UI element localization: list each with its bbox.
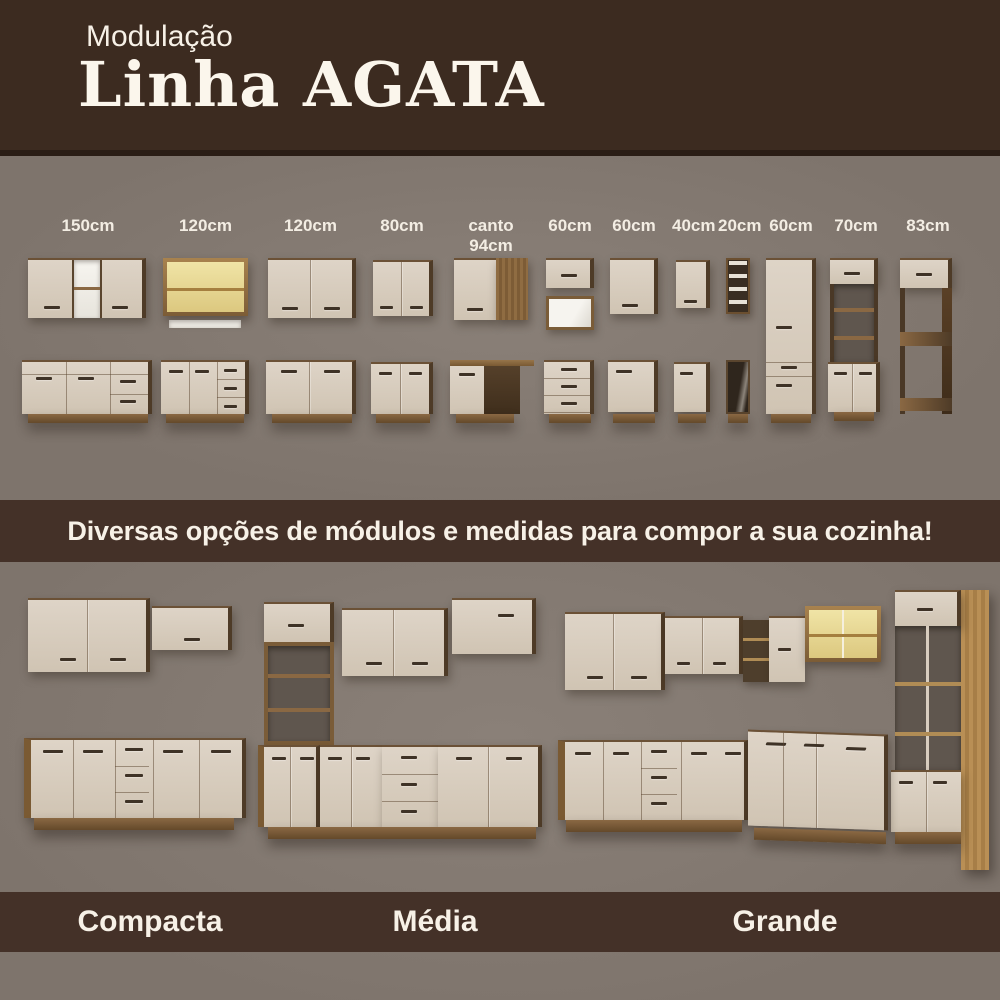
handle <box>43 750 63 753</box>
wall-cabinet-glass <box>163 258 248 316</box>
shelf <box>834 308 874 312</box>
handle <box>834 372 847 375</box>
corner-base-panel <box>484 366 520 414</box>
handle <box>272 757 286 760</box>
bottom-doors <box>828 362 880 412</box>
tower-top-door <box>895 590 961 626</box>
base-cabinet <box>608 360 658 412</box>
open-column <box>726 360 750 414</box>
module-40cm: 40cm <box>672 156 714 500</box>
handle <box>916 273 932 276</box>
handle <box>778 648 791 651</box>
top-door <box>830 258 878 284</box>
handle <box>845 747 866 751</box>
base-drawer-stack <box>544 360 594 414</box>
wall-cabinet <box>373 260 433 316</box>
module-120cm: 120cm <box>262 156 359 500</box>
wall-flap-door <box>546 258 594 288</box>
handle <box>622 304 638 307</box>
tall-wall-door <box>769 616 805 682</box>
handle <box>78 377 94 380</box>
open-shelving <box>830 284 878 362</box>
handle <box>575 752 591 755</box>
door-divider <box>641 742 642 820</box>
handle <box>651 776 667 779</box>
handle <box>561 385 577 388</box>
module-150cm: 150cm <box>20 156 156 500</box>
handle <box>281 370 297 373</box>
divider <box>766 376 812 377</box>
wood-side-panel <box>961 590 989 870</box>
base-cabinet <box>161 360 249 414</box>
wall-cabinet <box>610 258 658 314</box>
handle <box>60 658 76 661</box>
shelf <box>268 708 330 712</box>
handle <box>120 380 136 383</box>
handle <box>211 750 231 753</box>
module-size-label: 80cm <box>368 216 436 236</box>
drawer-line <box>115 766 149 767</box>
handle <box>456 757 472 760</box>
plinth <box>895 832 961 844</box>
module-size-label: 60cm <box>606 216 662 236</box>
door-divider <box>217 362 218 414</box>
shelf <box>895 732 961 736</box>
handle <box>561 402 577 405</box>
base-doors <box>320 745 382 827</box>
handle <box>561 274 577 277</box>
door-divider <box>153 740 154 818</box>
handle <box>917 608 933 611</box>
corner-open-shelf <box>743 620 769 682</box>
handle <box>651 802 667 805</box>
plinth <box>566 820 742 832</box>
handle <box>844 272 860 275</box>
handle <box>169 370 183 373</box>
handle <box>356 757 370 760</box>
wall-cabinet <box>676 260 710 308</box>
handle <box>631 676 647 679</box>
lit-glass-interior <box>167 262 244 312</box>
bottle-rack <box>726 258 750 314</box>
door-divider <box>110 362 111 414</box>
plinth <box>549 414 591 423</box>
module-60cm-tall: 60cm <box>762 156 820 500</box>
handle <box>467 308 483 311</box>
module-83cm-frame: 83cm <box>896 156 960 500</box>
plinth <box>272 414 352 423</box>
base-run <box>24 738 246 818</box>
divider <box>766 362 812 363</box>
handle <box>459 373 475 376</box>
wall-cabinet <box>565 612 665 690</box>
wall-cabinet-high <box>452 598 536 654</box>
page-title: Linha AGATA <box>78 48 545 121</box>
handle <box>224 387 237 390</box>
handle <box>379 372 392 375</box>
shelf <box>895 682 961 686</box>
header-banner: Modulação Linha AGATA <box>0 0 1000 156</box>
door-divider <box>66 362 67 414</box>
drawer-line <box>382 774 438 775</box>
handle <box>328 757 342 760</box>
top-door <box>900 258 952 288</box>
wall-cabinet-low <box>665 616 743 674</box>
plinth <box>34 818 234 830</box>
module-size-label: 20cm <box>718 216 758 236</box>
tall-tower <box>885 590 993 890</box>
handle <box>613 752 629 755</box>
handle <box>83 750 103 753</box>
lit-glass-cabinet <box>805 606 881 662</box>
handle <box>498 614 514 617</box>
handle <box>933 781 947 784</box>
corner-wall-door <box>454 258 496 320</box>
handle <box>401 783 417 786</box>
base-cabinet <box>674 362 710 412</box>
handle <box>803 744 824 748</box>
handle <box>677 662 690 665</box>
plinth <box>728 414 748 423</box>
door-divider <box>115 740 116 818</box>
drawer-line <box>382 801 438 802</box>
door-divider <box>681 742 682 820</box>
handle <box>282 307 298 310</box>
module-size-label: 60cm <box>762 216 820 236</box>
tower-open-grid <box>895 626 961 770</box>
handle <box>112 306 128 309</box>
handle <box>561 368 577 371</box>
shelf <box>809 634 877 637</box>
shelf <box>743 658 769 661</box>
handle <box>125 800 143 803</box>
handle <box>380 306 393 309</box>
wall-cabinet <box>28 258 146 318</box>
plinth <box>678 414 706 423</box>
handle <box>725 752 741 755</box>
handle <box>300 757 314 760</box>
handle <box>776 384 792 387</box>
module-60cm-niche: 60cm <box>542 156 598 500</box>
module-size-label: 120cm <box>158 216 253 236</box>
plinth <box>456 414 514 423</box>
kitchen-label-grande: Grande <box>732 892 837 952</box>
module-size-label: 83cm <box>896 216 960 236</box>
module-size-label: 70cm <box>826 216 886 236</box>
modules-gallery: 150cm 120cm <box>0 156 1000 500</box>
partition <box>926 626 929 770</box>
module-size-label: 120cm <box>262 216 359 236</box>
door-divider <box>73 740 74 818</box>
handle <box>412 662 428 665</box>
door-divider <box>783 733 784 827</box>
handle <box>713 662 726 665</box>
handle <box>401 756 417 759</box>
plinth <box>754 828 886 845</box>
slogan-text: Diversas opções de módulos e medidas par… <box>67 516 932 547</box>
microwave-niche <box>546 296 594 330</box>
module-120cm-glass: 120cm <box>158 156 253 500</box>
handle <box>324 370 340 373</box>
base-run-right <box>748 730 888 831</box>
corner-base-door <box>450 366 484 414</box>
kitchen-label-compacta: Compacta <box>77 892 222 952</box>
wall-cabinet <box>28 598 150 672</box>
plinth <box>834 412 874 421</box>
handle <box>859 372 872 375</box>
handle <box>44 306 60 309</box>
tall-cabinet <box>766 258 816 414</box>
drawer-line <box>217 379 245 380</box>
handle <box>684 300 697 303</box>
handle <box>587 676 603 679</box>
shelf <box>743 638 769 641</box>
handle <box>410 306 423 309</box>
drawer-line <box>217 397 245 398</box>
handle <box>506 757 522 760</box>
handle <box>781 366 797 369</box>
plinth <box>376 414 430 423</box>
drawer-line <box>115 792 149 793</box>
drawer-line <box>110 394 148 395</box>
handle <box>401 810 417 813</box>
base-doors <box>438 745 542 827</box>
handle <box>224 369 237 372</box>
handle <box>651 750 667 753</box>
handle <box>616 370 632 373</box>
drawer-line <box>641 794 677 795</box>
handle <box>195 370 209 373</box>
open-niche <box>72 260 102 318</box>
base-run-left <box>558 740 748 820</box>
plinth <box>28 414 148 423</box>
base-cabinet <box>22 360 152 414</box>
handle <box>366 662 382 665</box>
drawer-line <box>641 768 677 769</box>
light-strip <box>169 320 241 328</box>
module-80cm: 80cm <box>368 156 436 500</box>
module-size-label: 40cm <box>672 216 714 236</box>
tower-open-shelves <box>264 642 334 745</box>
shelf <box>167 288 244 291</box>
plinth <box>166 414 244 423</box>
module-size-label: 60cm <box>542 216 598 236</box>
kitchen-label-media: Média <box>392 892 477 952</box>
module-20cm-rack: 20cm <box>718 156 758 500</box>
module-70cm-tower: 70cm <box>826 156 886 500</box>
shelf <box>268 674 330 678</box>
base-cabinet <box>371 362 433 414</box>
wall-cabinet <box>342 608 448 676</box>
handle <box>680 372 693 375</box>
plinth <box>613 414 655 423</box>
handle <box>125 774 143 777</box>
lit-glass-interior <box>809 610 877 658</box>
handle <box>288 624 304 627</box>
handle <box>691 752 707 755</box>
handle <box>125 748 143 751</box>
plinth <box>268 827 536 839</box>
frame-base <box>900 398 952 411</box>
handle <box>899 781 913 784</box>
module-size-label: canto 94cm <box>448 216 534 256</box>
frame-shelf <box>900 332 952 346</box>
base-drawer-stack <box>382 745 438 827</box>
handle <box>324 307 340 310</box>
handle <box>110 658 126 661</box>
slogan-banner: Diversas opções de módulos e medidas par… <box>0 500 1000 562</box>
handle <box>120 400 136 403</box>
module-size-label: 150cm <box>20 216 156 236</box>
base-doors <box>258 745 320 827</box>
promo-image: Modulação Linha AGATA 150cm <box>0 0 1000 1000</box>
door-divider <box>199 740 200 818</box>
handle <box>776 326 792 329</box>
frame-rail-left <box>900 288 905 414</box>
handle <box>409 372 422 375</box>
shelf <box>834 336 874 340</box>
shelf <box>74 287 100 290</box>
module-canto-94cm: canto 94cm <box>448 156 534 500</box>
frame-rail-right <box>942 288 952 414</box>
rack-slots <box>729 261 747 311</box>
door-divider <box>603 742 604 820</box>
base-cabinet <box>266 360 356 414</box>
handle <box>36 377 52 380</box>
handle <box>224 405 237 408</box>
footer-band: Compacta Média Grande <box>0 892 1000 952</box>
plinth <box>771 414 811 423</box>
tower-top-door <box>264 602 334 642</box>
wall-cabinet-low <box>152 606 232 650</box>
handle <box>163 750 183 753</box>
drawer-line <box>22 374 148 375</box>
corner-wood-panel <box>496 258 528 320</box>
door-divider <box>189 362 190 414</box>
wall-cabinet <box>268 258 356 318</box>
handle <box>184 638 200 641</box>
tower-bottom-doors <box>891 770 961 832</box>
kitchen-configurations: Compacta Média Grande <box>0 562 1000 1000</box>
module-60cm: 60cm <box>606 156 662 500</box>
